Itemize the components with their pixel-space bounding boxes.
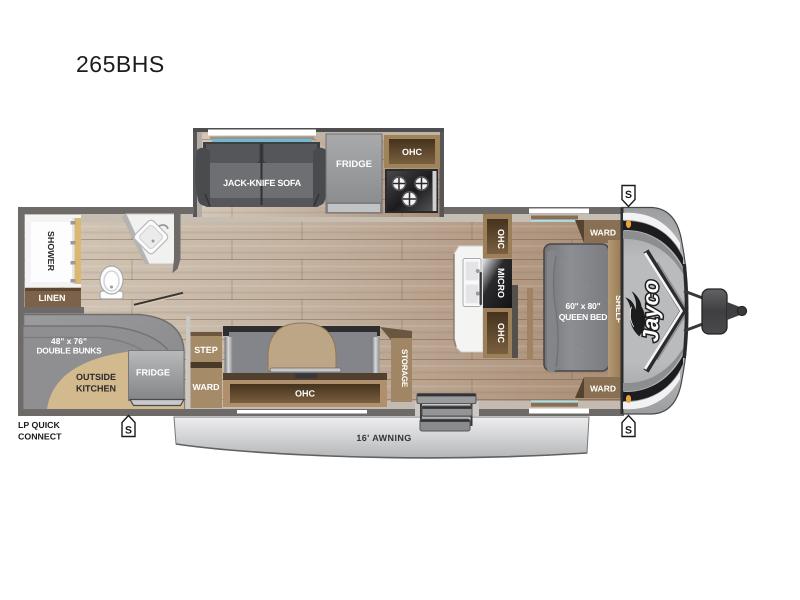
svg-text:48" x 76": 48" x 76" xyxy=(51,336,87,346)
svg-text:16' AWNING: 16' AWNING xyxy=(356,433,411,443)
svg-text:CONNECT: CONNECT xyxy=(18,432,62,442)
svg-text:265BHS: 265BHS xyxy=(76,51,165,77)
svg-text:FRIDGE: FRIDGE xyxy=(336,159,372,170)
svg-text:S: S xyxy=(625,189,632,201)
svg-text:OHC: OHC xyxy=(496,323,506,344)
svg-text:S: S xyxy=(125,425,132,437)
svg-text:60" x 80": 60" x 80" xyxy=(565,301,600,311)
svg-text:S: S xyxy=(625,425,632,437)
svg-text:WARD: WARD xyxy=(193,382,220,392)
svg-text:FRIDGE: FRIDGE xyxy=(136,368,170,378)
svg-text:QUEEN BED: QUEEN BED xyxy=(559,312,607,322)
svg-text:KITCHEN: KITCHEN xyxy=(76,384,116,394)
svg-text:DOUBLE BUNKS: DOUBLE BUNKS xyxy=(36,346,102,356)
svg-text:OUTSIDE: OUTSIDE xyxy=(76,372,116,382)
svg-text:WARD: WARD xyxy=(590,228,616,238)
svg-text:JACK-KNIFE SOFA: JACK-KNIFE SOFA xyxy=(223,178,302,188)
svg-text:WARD: WARD xyxy=(590,384,616,394)
svg-text:OHC: OHC xyxy=(295,389,316,399)
svg-text:STEP: STEP xyxy=(194,345,218,355)
svg-text:LP QUICK: LP QUICK xyxy=(18,420,61,430)
svg-text:LINEN: LINEN xyxy=(39,293,66,303)
svg-text:STORAGE: STORAGE xyxy=(400,349,409,388)
svg-text:MICRO: MICRO xyxy=(496,268,506,298)
svg-text:OHC: OHC xyxy=(496,229,506,250)
svg-text:OHC: OHC xyxy=(402,147,423,157)
svg-text:SHOWER: SHOWER xyxy=(46,231,56,272)
